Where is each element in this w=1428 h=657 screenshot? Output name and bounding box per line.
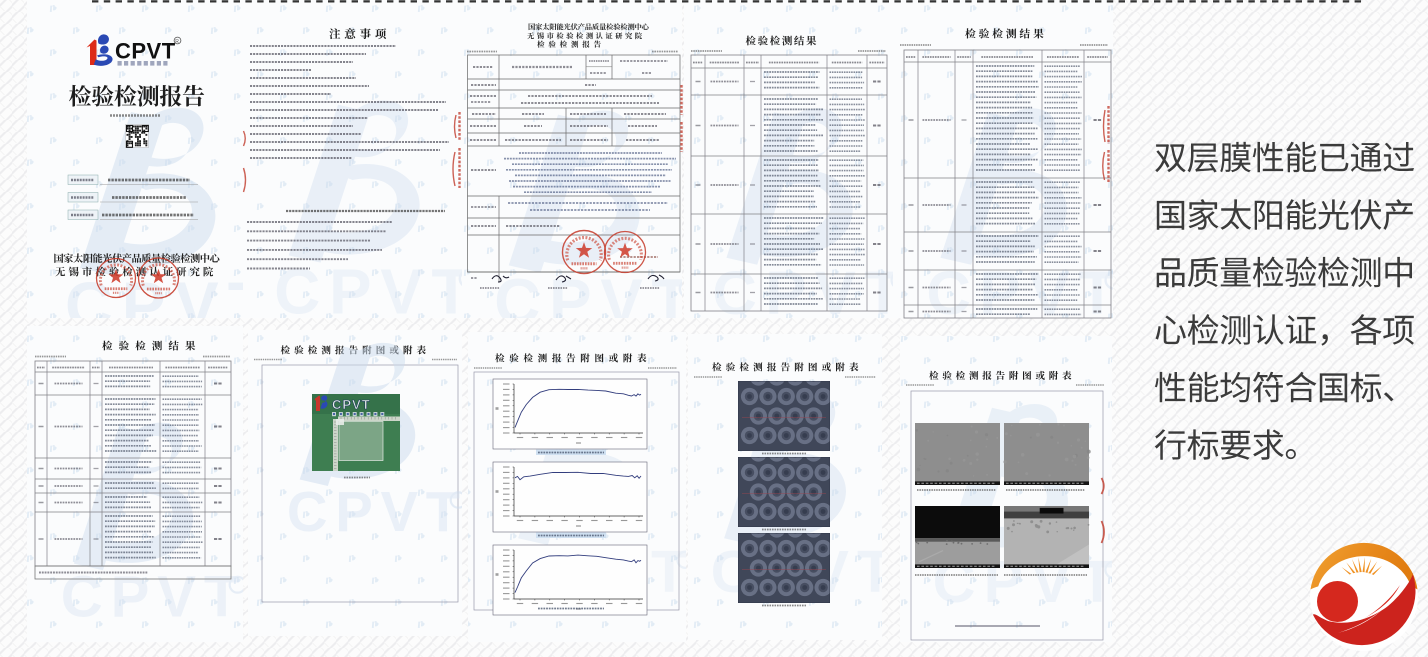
svg-text:R: R xyxy=(175,39,179,45)
svg-text:CPVT: CPVT xyxy=(115,39,176,64)
svg-text:CPVT: CPVT xyxy=(332,397,371,412)
